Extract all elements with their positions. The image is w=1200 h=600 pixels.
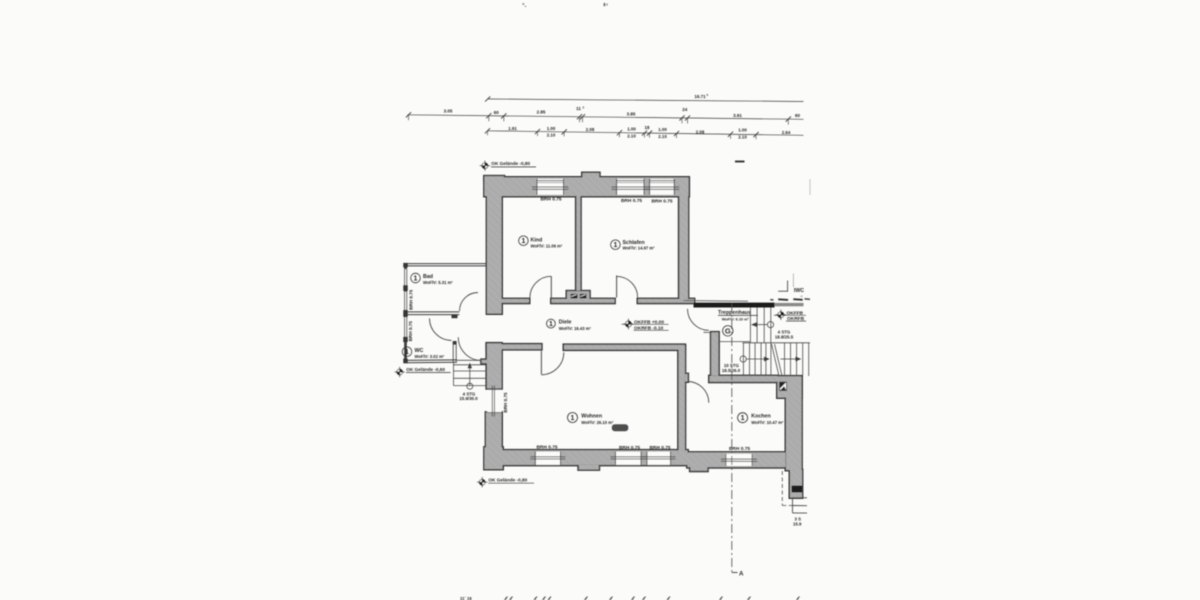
- svg-text:3.91: 3.91: [733, 113, 742, 118]
- svg-text:16.71: 16.71: [694, 94, 706, 99]
- svg-text:BRH 0.75: BRH 0.75: [649, 445, 670, 451]
- svg-text:1.91: 1.91: [508, 126, 517, 131]
- svg-text:1: 1: [405, 349, 409, 356]
- svg-text:IWC: IWC: [794, 288, 804, 294]
- svg-text:Kind: Kind: [531, 237, 543, 243]
- svg-text:Kochen: Kochen: [751, 414, 770, 420]
- svg-text:1: 1: [549, 321, 553, 328]
- svg-text:2.64: 2.64: [782, 130, 791, 135]
- svg-text:A: A: [739, 571, 744, 578]
- svg-text:WoFlV: 3.02 m²: WoFlV: 3.02 m²: [415, 354, 445, 359]
- svg-text:BRH 0.75: BRH 0.75: [409, 289, 414, 310]
- svg-text:BRH 0.75: BRH 0.75: [651, 198, 672, 204]
- svg-text:OK Gelände -0,60: OK Gelände -0,60: [406, 367, 445, 372]
- svg-text:·›: ·›: [800, 294, 802, 298]
- svg-text:1: 1: [521, 238, 525, 245]
- svg-text:18.8/25.5: 18.8/25.5: [775, 335, 794, 340]
- svg-text:2.10: 2.10: [738, 135, 747, 140]
- svg-text:WoFlV: 6.10 m²: WoFlV: 6.10 m²: [722, 318, 750, 322]
- svg-text:BRH 0.75: BRH 0.75: [408, 321, 413, 342]
- svg-text:WoFlV: 14.97 m²: WoFlV: 14.97 m²: [623, 245, 656, 250]
- svg-text:18.5/26.0: 18.5/26.0: [722, 368, 741, 373]
- svg-text:OK Gelände -0,80: OK Gelände -0,80: [488, 478, 527, 483]
- svg-text:G: G: [725, 327, 731, 336]
- svg-text:BRH 0.75: BRH 0.75: [503, 392, 508, 413]
- svg-text:15.9/30.0: 15.9/30.0: [459, 396, 478, 401]
- svg-text:18: 18: [645, 125, 650, 130]
- svg-text:1: 1: [571, 415, 575, 422]
- svg-text:3.85: 3.85: [627, 111, 636, 116]
- svg-text:1.00: 1.00: [547, 126, 556, 131]
- svg-text:3.05: 3.05: [444, 109, 453, 114]
- svg-text:1.00: 1.00: [738, 128, 747, 133]
- svg-text:BRH 0.75: BRH 0.75: [619, 445, 640, 451]
- svg-text:BRH 0.75: BRH 0.75: [540, 196, 561, 202]
- svg-text:BRH 0.75: BRH 0.75: [536, 445, 557, 451]
- svg-text:OK Gelände -0,80: OK Gelände -0,80: [491, 161, 530, 166]
- svg-text:WoFlV: 5.31 m²: WoFlV: 5.31 m²: [423, 280, 453, 285]
- svg-text:2.85: 2.85: [537, 110, 546, 115]
- svg-text:2.10: 2.10: [627, 133, 636, 138]
- svg-text:Diele: Diele: [559, 319, 572, 325]
- svg-text:WoFlV: 26.10 m²: WoFlV: 26.10 m²: [581, 420, 614, 425]
- svg-text:1.00: 1.00: [658, 127, 667, 132]
- svg-text:2.10: 2.10: [547, 133, 556, 138]
- svg-text:BRH 0.75: BRH 0.75: [621, 198, 642, 204]
- svg-text:1.00: 1.00: [627, 127, 636, 132]
- svg-text:60: 60: [494, 110, 500, 115]
- svg-text:24: 24: [682, 107, 688, 112]
- svg-text:BRH 0.75: BRH 0.75: [729, 446, 750, 452]
- svg-text:Wohnen: Wohnen: [581, 414, 602, 420]
- svg-text:2.08: 2.08: [586, 127, 595, 132]
- svg-text:WoFlV: 10.47 m²: WoFlV: 10.47 m²: [751, 420, 784, 425]
- svg-text:2.08: 2.08: [696, 130, 705, 135]
- svg-text:15.9: 15.9: [793, 522, 802, 527]
- svg-text:11´ 16: 11´ 16: [460, 596, 472, 600]
- svg-text:60: 60: [795, 113, 801, 118]
- svg-text:WoFlV: 16.43 m²: WoFlV: 16.43 m²: [559, 326, 592, 331]
- svg-text:11: 11: [576, 106, 581, 111]
- svg-text:1: 1: [741, 415, 745, 422]
- svg-text:2.10: 2.10: [658, 134, 667, 139]
- svg-text:WoFlV: 11.06 m²: WoFlV: 11.06 m²: [531, 244, 563, 249]
- svg-text:1: 1: [414, 275, 418, 282]
- svg-text:1: 1: [613, 242, 617, 249]
